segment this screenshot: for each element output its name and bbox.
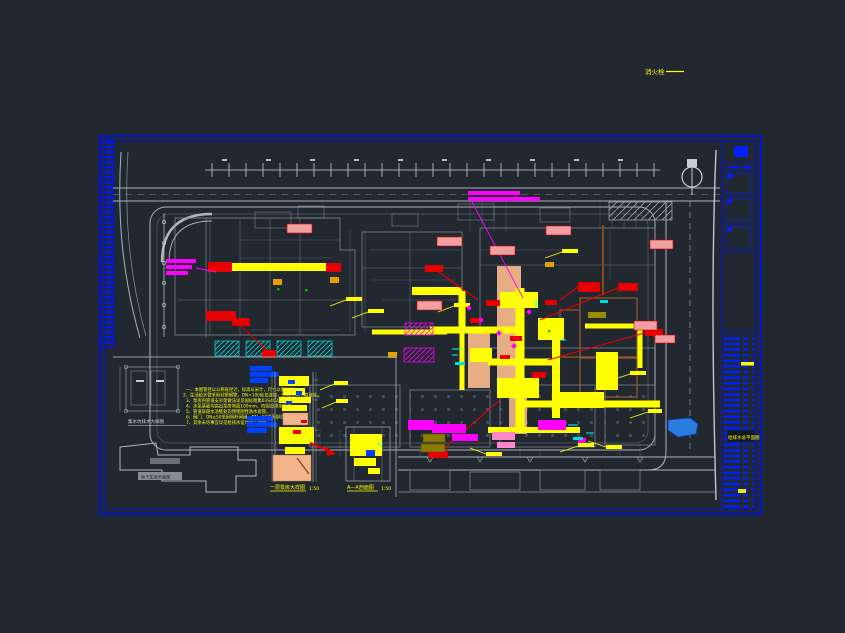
company-logo — [734, 146, 748, 157]
sump-detail-label: 集水坑排水大样图 — [128, 418, 164, 425]
cad-viewport: 消火栓 给排水总平面图 — [0, 0, 845, 633]
note-line: 5、管道穿越水池壁处均预埋刚性防水套管。 — [186, 408, 270, 415]
section-label: A—A剖面图 — [347, 484, 374, 491]
note-line: 4、水泵基础均高出泵房地面100mm，四周设排水明沟。 — [186, 403, 296, 410]
drawing-title-row: 给排水总平面图 — [728, 434, 760, 441]
building-south-4 — [605, 385, 655, 445]
pump-room-scale: 1:50 — [309, 486, 319, 492]
pipe-west-run — [232, 263, 328, 271]
inset-panel: 集水坑排水大样图 一、本图管径以公称直径计，标高以米计，尺寸以毫米计。 2、生活… — [113, 357, 396, 497]
north-arrow-icon — [682, 159, 702, 195]
top-note-text: 消火栓 — [645, 67, 665, 76]
cad-drawing: 消火栓 给排水总平面图 — [0, 0, 845, 633]
parking-hatch — [609, 202, 672, 220]
title-block-rows — [724, 334, 754, 508]
note-line: 3、泵房内管道支吊架做法详见国标图集03S402。 — [186, 397, 282, 404]
building-west — [175, 218, 355, 335]
legend-text-column — [100, 140, 114, 347]
section-scale: 1:50 — [381, 486, 391, 492]
note-line: 一、本图管径以公称直径计，标高以米计，尺寸以毫米计。 — [186, 386, 298, 393]
survey-line — [162, 159, 660, 338]
left-legend-strip — [100, 140, 114, 347]
company-name-row — [725, 164, 753, 169]
top-note: 消火栓 — [645, 67, 684, 76]
footprint-label: 地下车库平面图 — [141, 474, 170, 481]
pond-shape — [668, 418, 698, 437]
title-block: 给排水总平面图 — [722, 141, 760, 509]
scale-highlight — [741, 362, 754, 366]
pump-room-label: 一层泵房大样图 — [270, 484, 305, 491]
